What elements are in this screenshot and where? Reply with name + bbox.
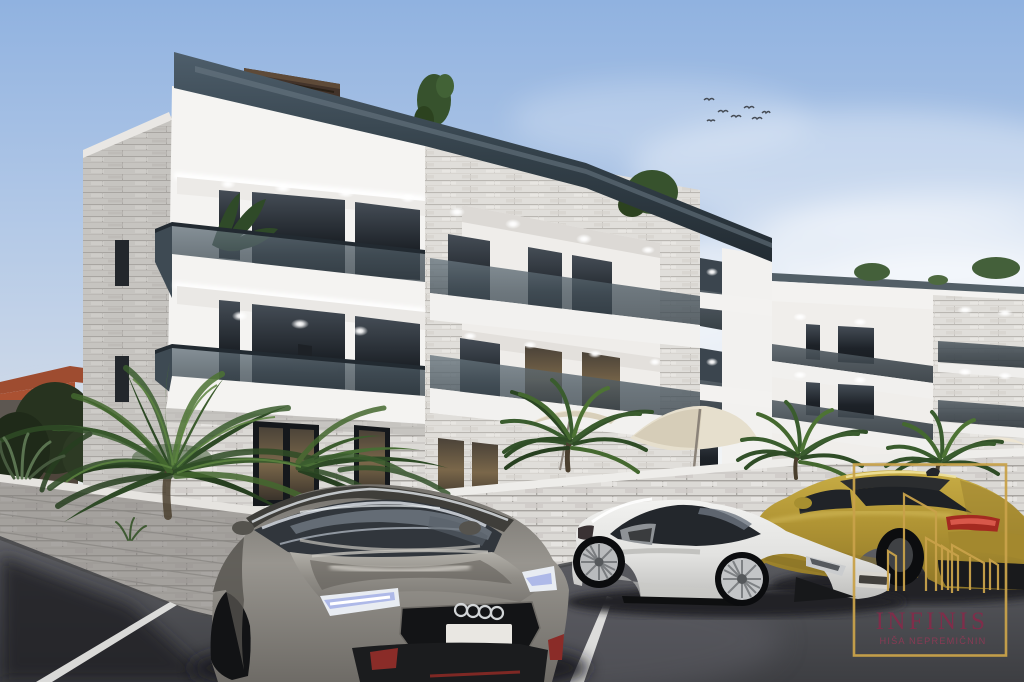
svg-text:INFINIS: INFINIS (876, 608, 989, 635)
svg-text:HIŠA NEPREMIČNIN: HIŠA NEPREMIČNIN (879, 636, 986, 646)
